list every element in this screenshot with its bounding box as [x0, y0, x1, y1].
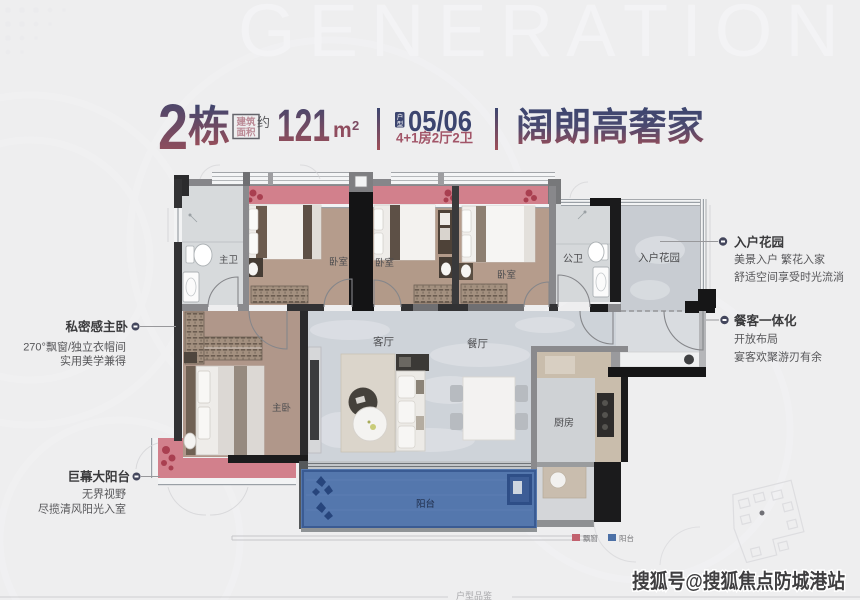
svg-text:餐客一体化: 餐客一体化: [733, 313, 797, 328]
svg-text:约: 约: [257, 115, 270, 130]
svg-text:面积: 面积: [237, 127, 257, 139]
svg-text:栋: 栋: [188, 103, 230, 150]
svg-text:阳台: 阳台: [619, 533, 634, 543]
svg-text:飘窗: 飘窗: [583, 533, 598, 543]
svg-text:阔朗高奢家: 阔朗高奢家: [516, 107, 704, 149]
svg-text:户型品鉴: 户型品鉴: [456, 590, 492, 600]
svg-text:美景入户 繁花入家: 美景入户 繁花入家: [734, 252, 825, 266]
svg-text:4+1房2厅2卫: 4+1房2厅2卫: [396, 130, 473, 146]
svg-text:实用美学兼得: 实用美学兼得: [60, 354, 126, 368]
svg-text:无界视野: 无界视野: [82, 487, 126, 501]
svg-text:2: 2: [352, 118, 359, 133]
svg-text:GENERATION: GENERATION: [238, 0, 852, 72]
svg-text:m: m: [333, 119, 352, 142]
svg-text:卧室: 卧室: [329, 256, 348, 268]
svg-text:阳台: 阳台: [416, 498, 435, 510]
svg-text:搜狐号@搜狐焦点防城港站: 搜狐号@搜狐焦点防城港站: [632, 569, 845, 593]
svg-text:270°飘窗/独立衣帽间: 270°飘窗/独立衣帽间: [23, 340, 126, 354]
svg-text:主卧: 主卧: [272, 402, 292, 414]
svg-text:舒适空间享受时光流淌: 舒适空间享受时光流淌: [734, 270, 844, 284]
svg-text:121: 121: [277, 100, 330, 151]
svg-text:餐厅: 餐厅: [467, 337, 488, 350]
svg-text:卧室: 卧室: [497, 269, 516, 281]
svg-text:型: 型: [397, 119, 404, 128]
svg-text:卧室: 卧室: [375, 257, 394, 269]
svg-text:客厅: 客厅: [373, 335, 394, 348]
svg-text:入户花园: 入户花园: [638, 251, 680, 264]
svg-text:户: 户: [397, 112, 404, 121]
svg-text:厨房: 厨房: [554, 416, 574, 429]
svg-text:宴客欢聚游刃有余: 宴客欢聚游刃有余: [734, 350, 822, 364]
svg-text:私密感主卧: 私密感主卧: [64, 319, 128, 334]
svg-text:2: 2: [158, 91, 188, 163]
svg-text:开放布局: 开放布局: [734, 332, 778, 346]
svg-text:巨幕大阳台: 巨幕大阳台: [67, 469, 130, 484]
svg-text:公卫: 公卫: [563, 254, 583, 265]
svg-text:入户花园: 入户花园: [734, 235, 784, 250]
svg-text:尽揽清风阳光入室: 尽揽清风阳光入室: [38, 502, 126, 516]
svg-text:建筑: 建筑: [236, 116, 257, 128]
svg-text:主卫: 主卫: [219, 254, 239, 266]
